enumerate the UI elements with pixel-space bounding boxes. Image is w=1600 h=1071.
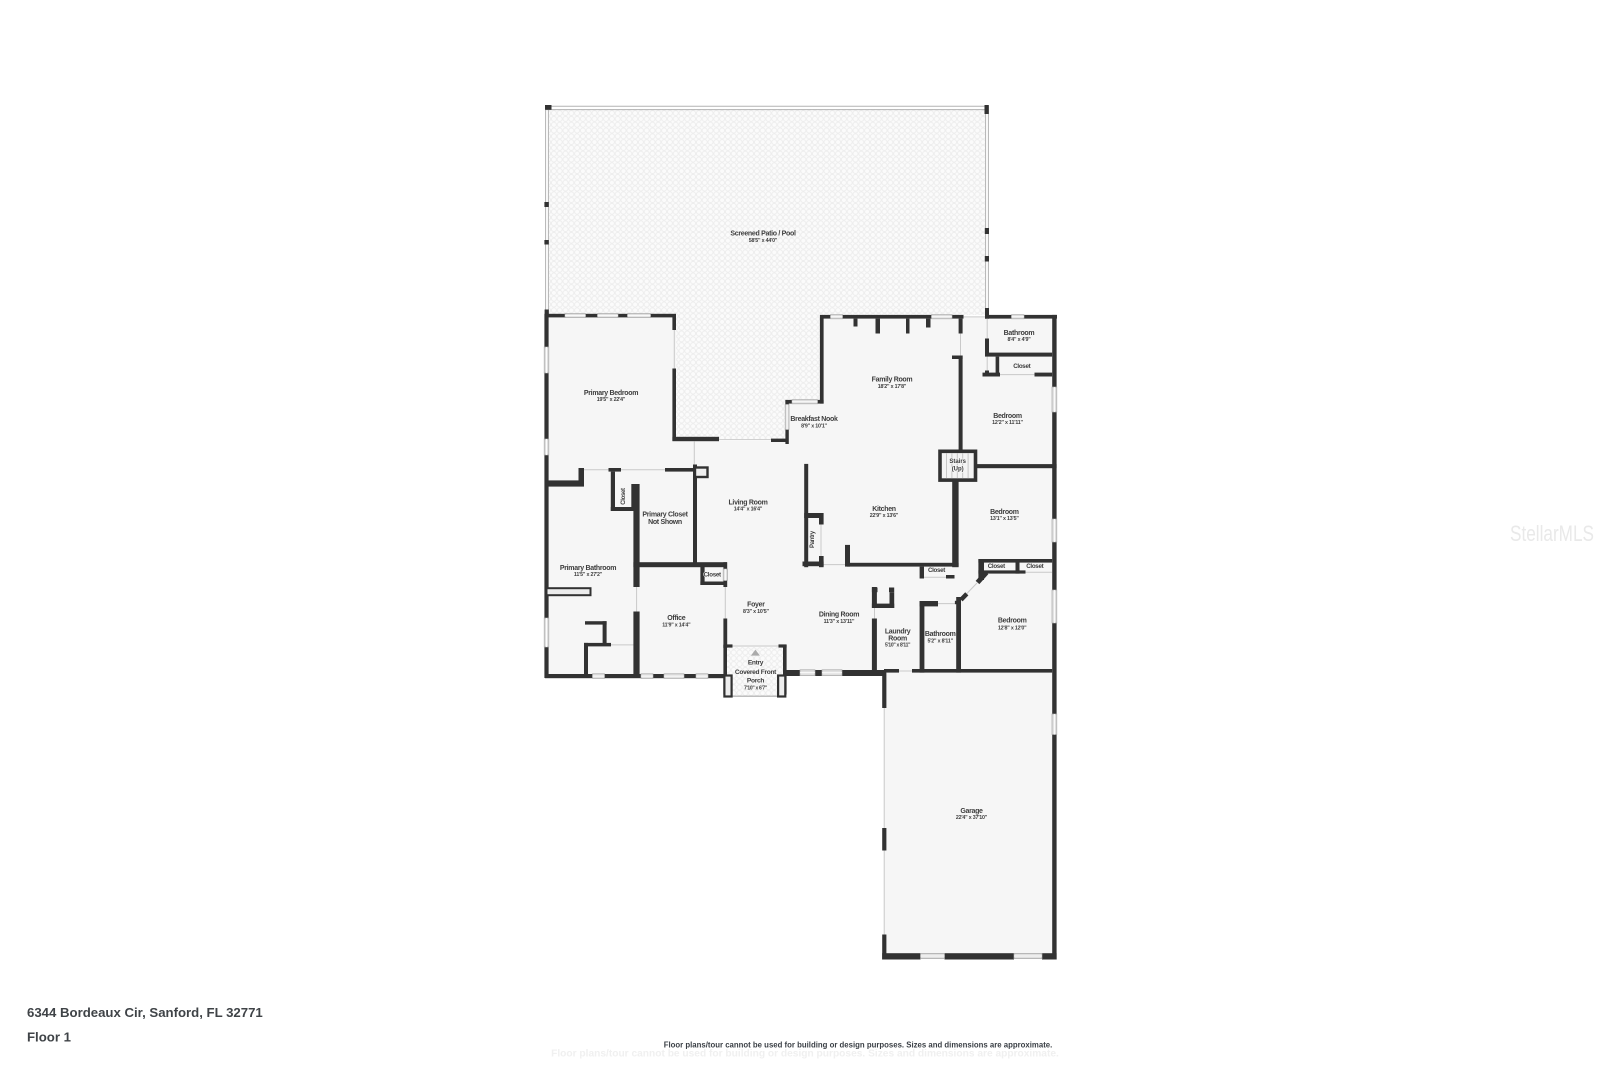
svg-text:Bedroom: Bedroom (998, 617, 1027, 624)
svg-text:Family Room: Family Room (872, 376, 913, 383)
svg-text:Bathroom: Bathroom (925, 631, 956, 638)
svg-text:5'2" x 8'11": 5'2" x 8'11" (927, 639, 953, 645)
svg-text:22'4" x 37'10": 22'4" x 37'10" (956, 815, 988, 821)
svg-text:8'4" x 4'9": 8'4" x 4'9" (1007, 337, 1031, 343)
svg-text:Primary Bedroom: Primary Bedroom (584, 390, 638, 397)
svg-text:Closet: Closet (1026, 563, 1043, 570)
svg-text:19'5" x 22'4": 19'5" x 22'4" (597, 397, 626, 403)
svg-text:Bedroom: Bedroom (993, 413, 1022, 420)
svg-text:Closet: Closet (704, 571, 721, 578)
svg-text:StellarMLS: StellarMLS (1510, 521, 1594, 546)
svg-text:Floor plans/tour cannot be use: Floor plans/tour cannot be used for buil… (551, 1048, 1059, 1059)
svg-text:Laundry: Laundry (885, 628, 911, 635)
svg-text:6344 Bordeaux Cir, Sanford, FL: 6344 Bordeaux Cir, Sanford, FL 32771 (27, 1005, 263, 1020)
svg-text:8'9" x 10'1": 8'9" x 10'1" (801, 424, 827, 430)
svg-text:58'5" x 44'0": 58'5" x 44'0" (749, 238, 778, 244)
svg-text:Closet: Closet (928, 567, 945, 574)
svg-text:5'10" x 8'11": 5'10" x 8'11" (885, 643, 911, 649)
svg-text:Floor 1: Floor 1 (27, 1029, 71, 1044)
svg-text:22'9" x 13'6": 22'9" x 13'6" (870, 513, 899, 519)
svg-text:(Up): (Up) (952, 467, 964, 473)
svg-text:Bathroom: Bathroom (1004, 330, 1035, 337)
svg-text:Garage: Garage (960, 808, 983, 815)
svg-text:13'1" x 13'5": 13'1" x 13'5" (990, 516, 1019, 522)
svg-text:Porch: Porch (747, 677, 764, 684)
svg-text:7'10" x 6'7": 7'10" x 6'7" (744, 686, 768, 692)
svg-text:Covered Front: Covered Front (735, 669, 777, 676)
svg-text:Bedroom: Bedroom (990, 509, 1019, 516)
svg-text:Breakfast Nook: Breakfast Nook (790, 416, 838, 423)
svg-text:Foyer: Foyer (747, 602, 765, 609)
svg-text:18'2" x 17'8": 18'2" x 17'8" (878, 384, 907, 390)
svg-text:Closet: Closet (988, 563, 1005, 570)
svg-text:Room: Room (888, 635, 907, 642)
svg-text:12'8" x 12'0": 12'8" x 12'0" (998, 625, 1027, 631)
svg-text:8'3" x 10'5": 8'3" x 10'5" (743, 609, 769, 615)
svg-text:11'5" x 27'2": 11'5" x 27'2" (574, 572, 603, 578)
svg-text:Kitchen: Kitchen (872, 506, 896, 513)
svg-text:Primary Bathroom: Primary Bathroom (560, 565, 616, 572)
svg-text:Living Room: Living Room (728, 499, 767, 506)
svg-text:Closet: Closet (1013, 363, 1030, 370)
svg-text:Primary Closet: Primary Closet (642, 511, 688, 518)
svg-text:Pantry: Pantry (810, 530, 816, 548)
svg-text:Office: Office (667, 615, 685, 622)
svg-text:Screened Patio / Pool: Screened Patio / Pool (730, 230, 796, 237)
svg-text:Closet: Closet (621, 488, 627, 505)
svg-text:Dining Room: Dining Room (819, 611, 859, 618)
svg-text:11'3" x 13'11": 11'3" x 13'11" (824, 619, 855, 625)
svg-text:11'9" x 14'4": 11'9" x 14'4" (662, 623, 691, 629)
svg-text:Not Shown: Not Shown (648, 519, 682, 526)
svg-text:12'2" x 11'11": 12'2" x 11'11" (992, 420, 1023, 426)
svg-text:Stairs: Stairs (949, 459, 966, 465)
svg-text:Entry: Entry (748, 660, 764, 667)
svg-text:14'4" x 16'4": 14'4" x 16'4" (734, 507, 763, 513)
